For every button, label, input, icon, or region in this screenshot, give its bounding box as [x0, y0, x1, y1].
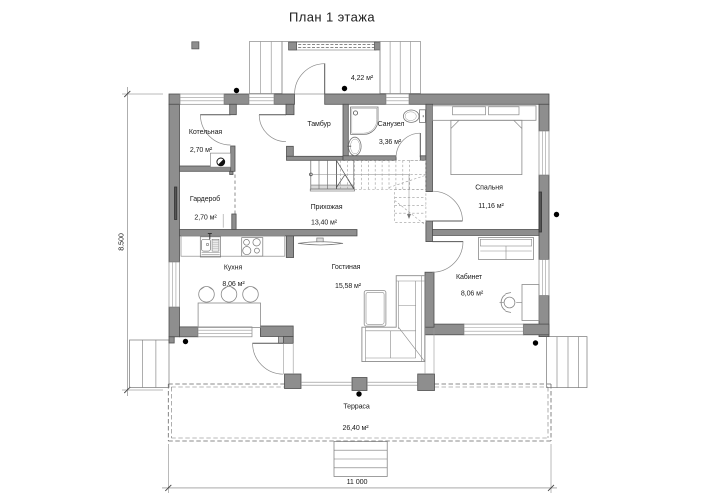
svg-text:13,40 м²: 13,40 м²	[311, 220, 338, 227]
svg-text:Прихожая: Прихожая	[311, 204, 343, 211]
svg-text:26,40 м²: 26,40 м²	[343, 425, 370, 432]
svg-text:4,22 м²: 4,22 м²	[351, 75, 374, 82]
svg-text:11,16 м²: 11,16 м²	[478, 203, 504, 210]
svg-text:8,06 м²: 8,06 м²	[461, 291, 484, 298]
svg-text:Котельная: Котельная	[189, 129, 222, 136]
svg-text:15,58 м²: 15,58 м²	[335, 283, 362, 290]
svg-text:3,36 м²: 3,36 м²	[379, 139, 402, 146]
svg-text:Гостиная: Гостиная	[332, 264, 361, 271]
svg-text:Кухня: Кухня	[224, 265, 243, 272]
svg-text:2,70 м²: 2,70 м²	[194, 215, 217, 222]
svg-text:Тамбур: Тамбур	[307, 120, 330, 128]
svg-text:Спальня: Спальня	[475, 185, 503, 192]
svg-text:План 1 этажа: План 1 этажа	[289, 10, 375, 25]
svg-text:11 000: 11 000	[347, 477, 368, 486]
svg-text:8.500: 8.500	[117, 233, 126, 251]
svg-text:Кабинет: Кабинет	[456, 273, 483, 281]
svg-text:Санузел: Санузел	[378, 121, 405, 128]
svg-text:Гардероб: Гардероб	[190, 195, 220, 203]
svg-text:2,70 м²: 2,70 м²	[190, 147, 213, 154]
svg-text:Терраса: Терраса	[343, 404, 370, 411]
